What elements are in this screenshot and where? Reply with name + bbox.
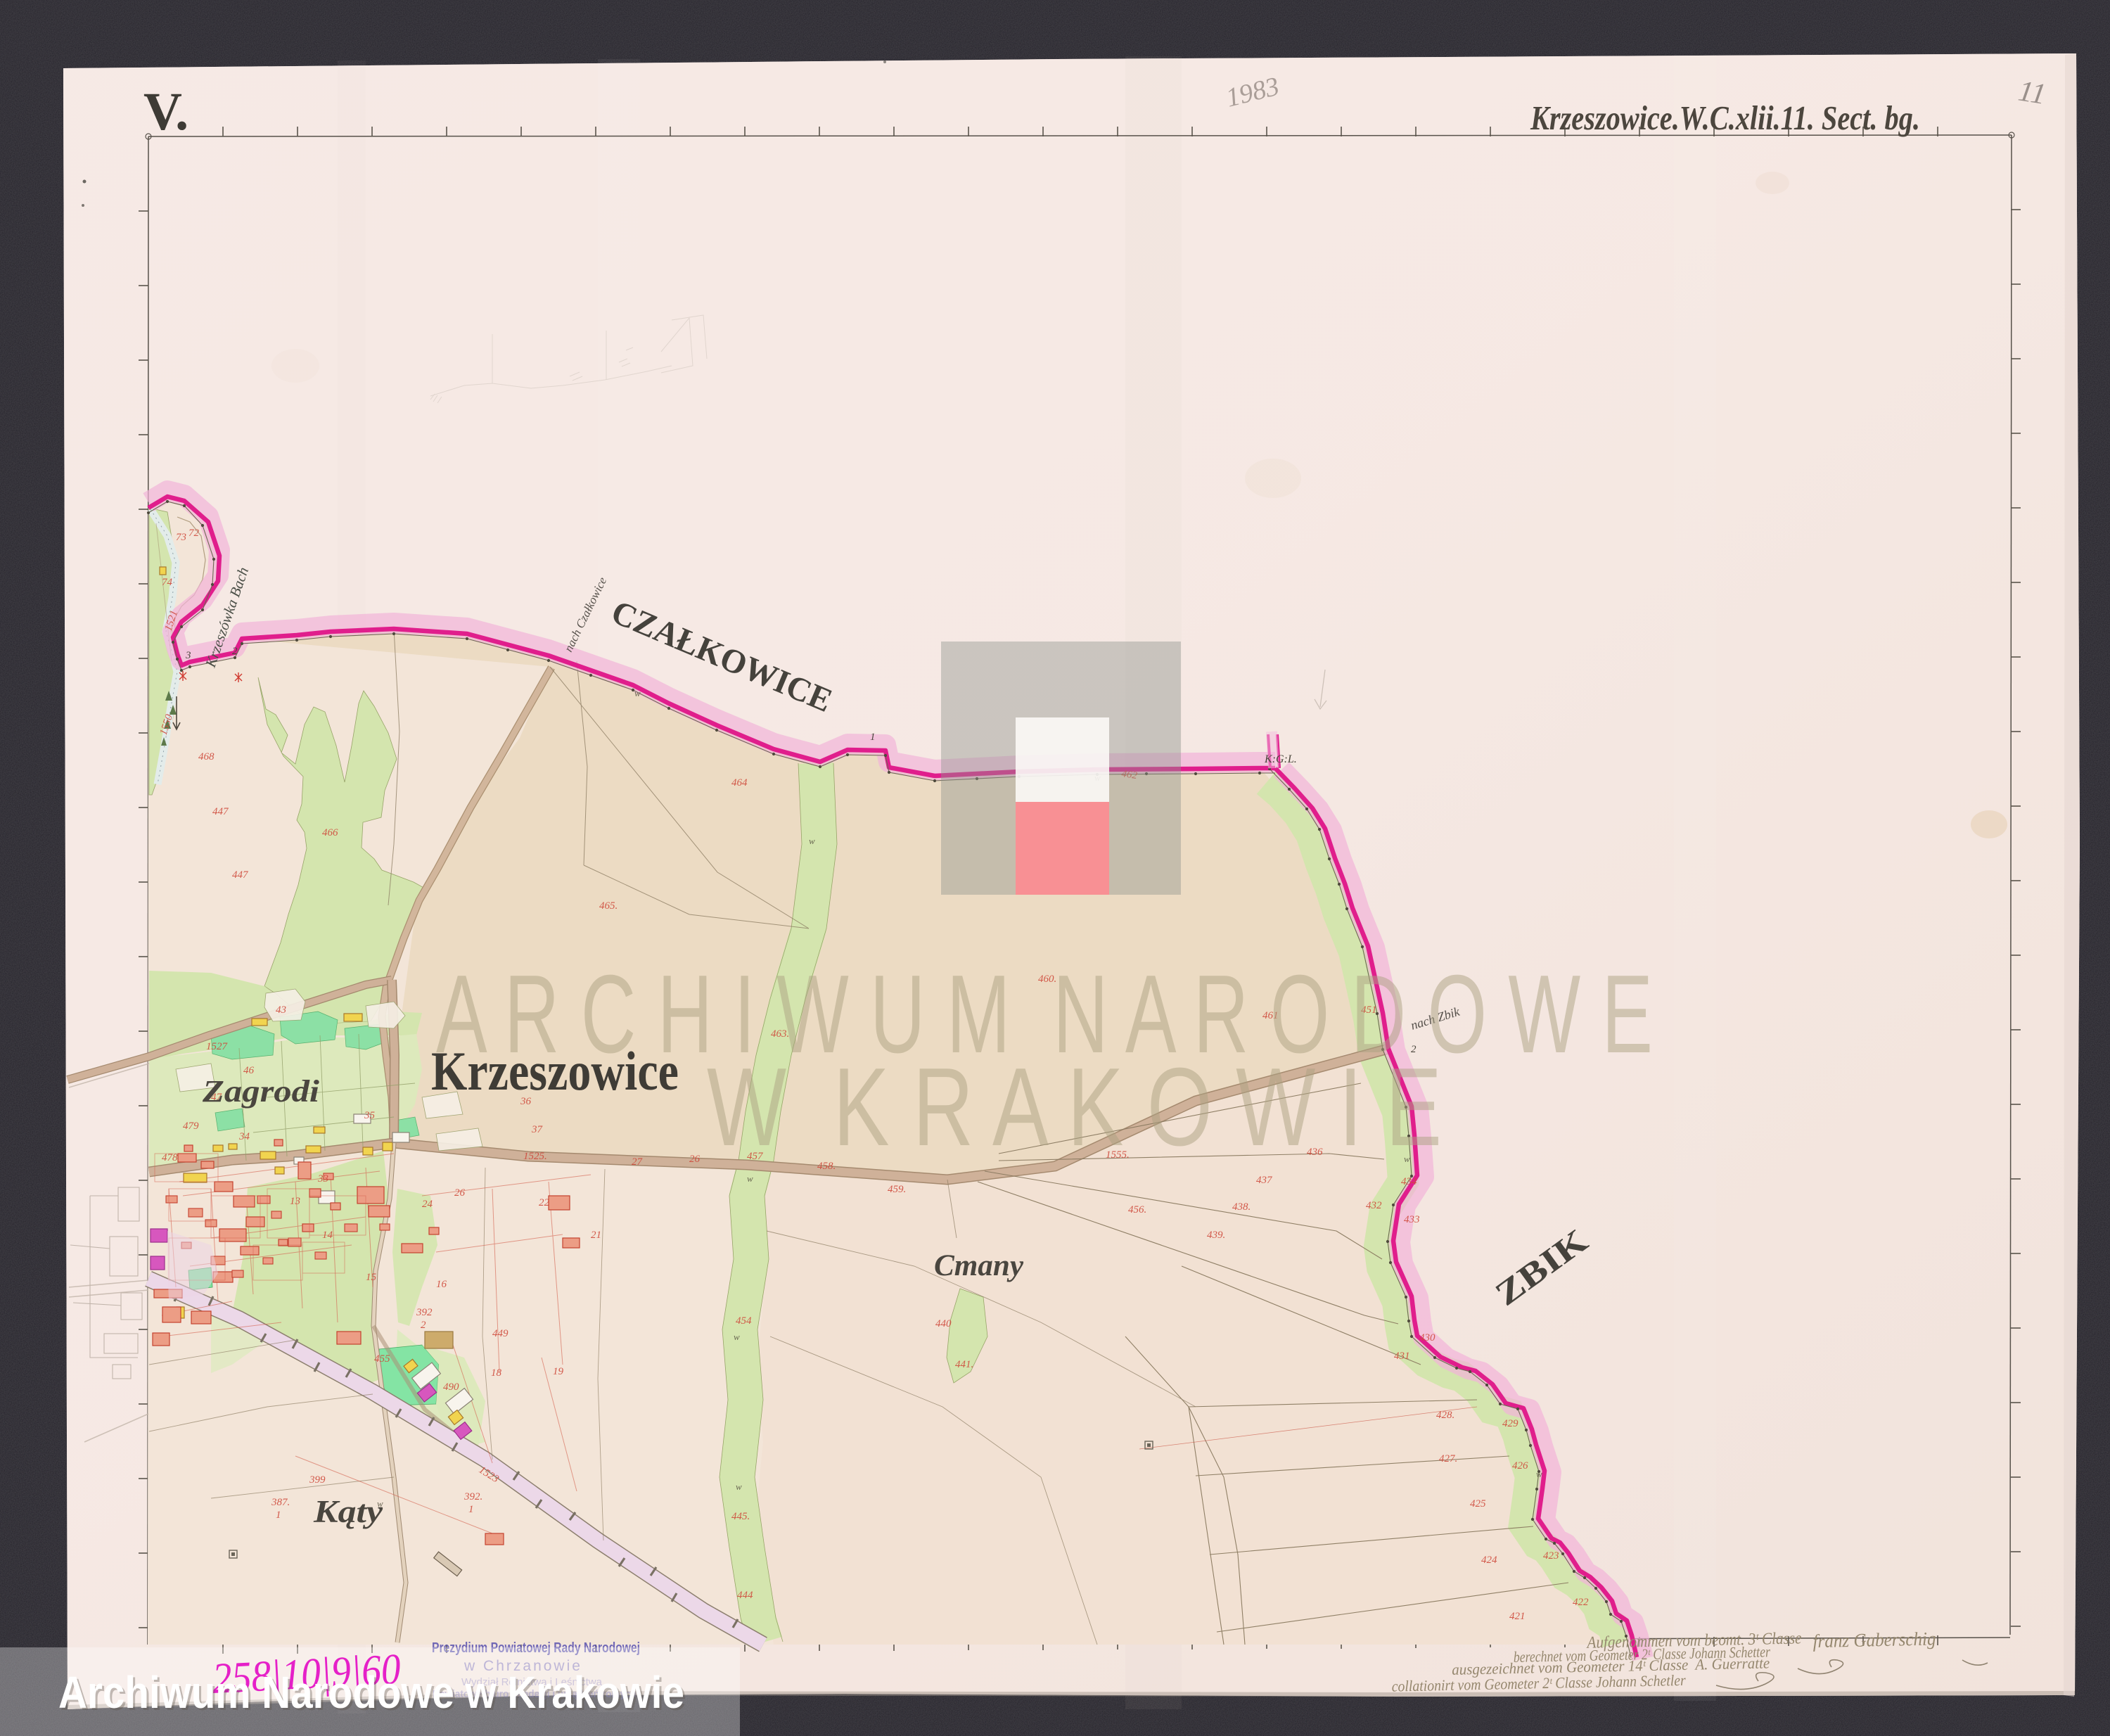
svg-text:43: 43: [276, 1004, 286, 1016]
svg-text:47: 47: [211, 1092, 223, 1103]
svg-text:429: 429: [1502, 1418, 1518, 1429]
svg-text:1: 1: [870, 732, 876, 743]
svg-text:431: 431: [1394, 1351, 1410, 1362]
svg-text:16: 16: [436, 1279, 447, 1290]
svg-text:392: 392: [416, 1307, 433, 1318]
svg-text:421: 421: [1509, 1611, 1526, 1622]
svg-text:459.: 459.: [888, 1184, 906, 1195]
svg-text:392.: 392.: [463, 1491, 482, 1502]
svg-text:21: 21: [591, 1230, 601, 1241]
svg-text:Archiwum Narodowe w Krakowie: Archiwum Narodowe w Krakowie: [58, 1667, 684, 1718]
svg-text:441.: 441.: [955, 1359, 973, 1370]
svg-text:447: 447: [212, 806, 229, 817]
svg-text:11: 11: [2016, 75, 2048, 111]
svg-text:432: 432: [1366, 1200, 1382, 1211]
svg-text:434: 434: [1401, 1176, 1417, 1187]
svg-text:72: 72: [188, 528, 200, 539]
svg-text:479: 479: [183, 1121, 199, 1132]
svg-text:Kąty: Kąty: [313, 1494, 383, 1529]
svg-text:74: 74: [162, 577, 173, 588]
svg-text:424: 424: [1481, 1555, 1497, 1566]
svg-text:w: w: [377, 1498, 383, 1509]
svg-text:46: 46: [243, 1065, 255, 1076]
svg-text:w: w: [736, 1481, 742, 1492]
svg-text:445.: 445.: [731, 1511, 750, 1522]
svg-text:2: 2: [232, 646, 238, 657]
svg-text:w: w: [734, 1332, 740, 1342]
svg-text:422: 422: [1573, 1597, 1589, 1608]
svg-text:w: w: [809, 836, 815, 846]
svg-text:444: 444: [737, 1590, 753, 1601]
svg-text:13: 13: [290, 1196, 300, 1207]
svg-text:465.: 465.: [599, 900, 618, 912]
svg-text:438.: 438.: [1232, 1201, 1251, 1213]
svg-text:437: 437: [1256, 1175, 1273, 1186]
svg-text:430: 430: [1419, 1332, 1436, 1344]
svg-text:33: 33: [317, 1173, 328, 1185]
svg-text:K:G:L.: K:G:L.: [1264, 753, 1297, 765]
svg-text:433: 433: [1404, 1214, 1420, 1225]
svg-text:14: 14: [322, 1230, 333, 1241]
svg-text:456.: 456.: [1128, 1204, 1146, 1215]
svg-text:449: 449: [492, 1328, 509, 1339]
svg-text:franz Gaberschig: franz Gaberschig: [1812, 1628, 1936, 1652]
svg-text:35: 35: [364, 1110, 376, 1121]
svg-text:455: 455: [374, 1353, 390, 1365]
svg-text:19: 19: [553, 1366, 564, 1377]
svg-text:3: 3: [185, 650, 191, 661]
svg-text:1525.: 1525.: [523, 1151, 547, 1162]
svg-text:478: 478: [162, 1152, 178, 1163]
svg-text:w: w: [1536, 1469, 1542, 1479]
svg-text:490: 490: [443, 1381, 459, 1393]
svg-text:387.: 387.: [271, 1497, 290, 1508]
svg-text:w: w: [634, 688, 641, 698]
svg-text:Cmany: Cmany: [934, 1249, 1024, 1282]
svg-text:466: 466: [322, 827, 338, 838]
svg-text:27: 27: [632, 1156, 644, 1168]
svg-text:26: 26: [689, 1154, 701, 1165]
svg-text:15: 15: [366, 1272, 377, 1283]
svg-text:428.: 428.: [1436, 1410, 1454, 1421]
svg-text:1: 1: [468, 1504, 474, 1515]
svg-text:2: 2: [421, 1320, 426, 1331]
svg-text:24: 24: [422, 1199, 433, 1210]
svg-text:1: 1: [276, 1510, 281, 1521]
svg-text:34: 34: [238, 1131, 250, 1142]
svg-text:427.: 427.: [1439, 1453, 1457, 1464]
svg-text:454: 454: [736, 1315, 752, 1327]
svg-text:Krzeszowice.W.C.xlii.11. Sect.: Krzeszowice.W.C.xlii.11. Sect. bg.: [1530, 98, 1920, 137]
svg-text:426: 426: [1512, 1460, 1528, 1472]
svg-text:73: 73: [176, 532, 186, 543]
svg-text:464: 464: [731, 777, 748, 789]
svg-text:18: 18: [491, 1367, 502, 1379]
svg-text:36: 36: [520, 1096, 532, 1107]
svg-text:1527: 1527: [206, 1041, 229, 1052]
svg-text:468: 468: [198, 751, 215, 762]
svg-text:447: 447: [232, 869, 249, 881]
svg-text:440: 440: [935, 1318, 952, 1329]
svg-text:37: 37: [531, 1124, 544, 1135]
svg-text:26: 26: [454, 1187, 466, 1199]
svg-text:22: 22: [539, 1197, 550, 1208]
svg-text:425: 425: [1470, 1498, 1486, 1510]
svg-text:439.: 439.: [1207, 1230, 1225, 1241]
svg-text:423: 423: [1543, 1550, 1559, 1562]
svg-text:V.: V.: [143, 82, 188, 141]
svg-text:W K R A K O W I E: W K R A K O W I E: [707, 1045, 1442, 1169]
svg-text:w: w: [747, 1173, 753, 1184]
svg-text:399: 399: [309, 1474, 326, 1486]
